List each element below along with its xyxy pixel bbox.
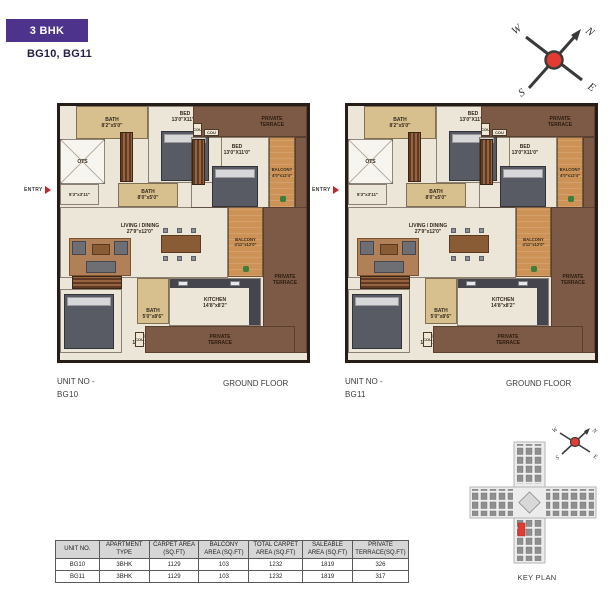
compass-s-label: S: [516, 86, 527, 99]
cdu-box: COU: [423, 332, 432, 347]
svg-text:N: N: [590, 427, 598, 435]
table-cell: 1819: [303, 559, 353, 571]
table-cell: 103: [199, 571, 249, 583]
svg-text:S: S: [555, 455, 561, 462]
balcony-1: BALCONY4'0"x12'4": [269, 137, 295, 208]
unit-numbers-subtitle: BG10, BG11: [27, 48, 92, 60]
room-bath-3: BATH5'0"x8'6": [137, 278, 169, 324]
floor-caption-bg10: GROUND FLOOR: [223, 378, 288, 391]
room-bath-1: BATH8'2"x5'0": [364, 106, 436, 139]
table-cell: 3BHK: [99, 571, 149, 583]
plant-icon: [531, 266, 537, 272]
keyplan-highlighted-unit: [518, 523, 525, 536]
plant-icon: [280, 196, 286, 202]
unit-number: BG11: [345, 389, 383, 402]
wardrobe-icon: [360, 276, 410, 289]
cdu-box: COU: [135, 332, 144, 347]
table-cell: 1129: [149, 571, 199, 583]
svg-text:W: W: [552, 426, 560, 434]
floor-plan: ENTRY BATH8'2"x5'0" BED13'0"X11'1" PRIVA…: [345, 103, 598, 363]
floor-caption-bg11: GROUND FLOOR: [506, 378, 571, 391]
table-cell: 326: [352, 559, 408, 571]
entry-foyer: 5'3"x3'11": [60, 184, 99, 205]
unit-caption-bg10: UNIT NO - BG10: [57, 376, 95, 402]
table-header-cell: CARPET AREA (SQ.FT): [149, 541, 199, 559]
table-cell: 103: [199, 559, 249, 571]
compass-n-label: N: [582, 24, 596, 39]
cdu-box: COU: [204, 129, 219, 136]
room-living-dining: LIVING / DINING27'9"x12'0": [60, 207, 228, 278]
plant-icon: [568, 196, 574, 202]
room-bed-3: [348, 289, 410, 353]
area-table: UNIT NO.APARTMENT TYPECARPET AREA (SQ.FT…: [55, 540, 409, 583]
floor-plan: ENTRY BATH8'2"x5'0" BED13'0"X11'1" PRIVA…: [57, 103, 310, 363]
table-cell: BG11: [56, 571, 100, 583]
entry-arrow-icon: [333, 186, 339, 194]
compass-rose: N W S E: [505, 18, 610, 103]
room-bath-1: BATH8'2"x5'0": [76, 106, 148, 139]
table-header-cell: TOTAL CARPET AREA (SQ.FT): [249, 541, 303, 559]
private-terrace-bottom: PRIVATE TERRACE: [433, 326, 583, 353]
room-kitchen: KITCHEN14'8"x8'2": [457, 278, 549, 326]
wardrobe-icon: [120, 132, 133, 182]
keyplan-building: [470, 442, 596, 563]
bed-furniture-icon: [352, 294, 402, 349]
ots-shaft: OTS: [348, 139, 393, 184]
bed-furniture-icon: [500, 166, 546, 207]
table-cell: 317: [352, 571, 408, 583]
wardrobe-icon: [72, 276, 122, 289]
private-terrace-edge: [295, 137, 307, 208]
balcony-2: BALCONY4'11"x12'0": [228, 207, 263, 277]
table-cell: 1129: [149, 559, 199, 571]
balcony-2: BALCONY4'11"x12'0": [516, 207, 551, 277]
table-row: BG113BHK112910312321819317: [56, 571, 409, 583]
table-cell: 1232: [249, 559, 303, 571]
cdu-box: COU: [492, 129, 507, 136]
compass-e-label: E: [584, 80, 597, 94]
sofa-set-icon: [357, 238, 419, 276]
entry-label: ENTRY: [312, 187, 331, 193]
bed-furniture-icon: [212, 166, 258, 207]
room-living-dining: LIVING / DINING27'9"x12'0": [348, 207, 516, 278]
svg-text:E: E: [591, 453, 599, 461]
table-row: BG103BHK112910312321819326: [56, 559, 409, 571]
unit-number: BG10: [57, 389, 95, 402]
private-terrace-bottom: PRIVATE TERRACE: [145, 326, 295, 353]
entry-marker: ENTRY: [24, 186, 51, 194]
table-header-cell: APARTMENT TYPE: [99, 541, 149, 559]
kitchen-counter-icon: [170, 279, 260, 288]
sofa-set-icon: [69, 238, 131, 276]
kitchen-counter-icon: [458, 279, 548, 288]
dining-table-icon: [445, 228, 493, 262]
wardrobe-icon: [480, 139, 493, 185]
floorplan-brochure-page: { "page": { "badge": "3 BHK", "subtitle"…: [0, 0, 615, 613]
room-bath-2: BATH8'0"x5'0": [118, 183, 178, 207]
entry-arrow-icon: [45, 186, 51, 194]
room-bath-2: BATH8'0"x5'0": [406, 183, 466, 207]
table-header-cell: SALEABLE AREA (SQ.FT): [303, 541, 353, 559]
entry-foyer: 5'3"x3'11": [348, 184, 387, 205]
cdu-box: COU: [481, 123, 490, 136]
table-header-cell: UNIT NO.: [56, 541, 100, 559]
table-cell: BG10: [56, 559, 100, 571]
dining-table-icon: [157, 228, 205, 262]
unit-label: UNIT NO -: [345, 376, 383, 389]
table-cell: 1819: [303, 571, 353, 583]
kitchen-counter-icon: [537, 288, 548, 325]
bhk-type-badge: 3 BHK: [6, 19, 88, 42]
key-plan-caption: KEY PLAN: [462, 573, 612, 582]
ots-shaft: OTS: [60, 139, 105, 184]
floor-plan-bg11: ENTRY BATH8'2"x5'0" BED13'0"X11'1" PRIVA…: [345, 103, 598, 363]
bed-furniture-icon: [64, 294, 114, 349]
wardrobe-icon: [408, 132, 421, 182]
entry-marker: ENTRY: [312, 186, 339, 194]
kitchen-counter-icon: [249, 288, 260, 325]
key-plan: N W S E KEY PLAN: [462, 420, 612, 585]
balcony-1: BALCONY4'0"x12'4": [557, 137, 583, 208]
entry-label: ENTRY: [24, 187, 43, 193]
table-cell: 1232: [249, 571, 303, 583]
wardrobe-icon: [192, 139, 205, 185]
unit-label: UNIT NO -: [57, 376, 95, 389]
private-terrace-edge: [583, 137, 595, 208]
plant-icon: [243, 266, 249, 272]
room-kitchen: KITCHEN14'8"x8'2": [169, 278, 261, 326]
floor-plan-bg10: ENTRY BATH8'2"x5'0" BED13'0"X11'1" PRIVA…: [57, 103, 310, 363]
keyplan-compass-icon: N W S E: [552, 426, 599, 462]
table-header-cell: PRIVATE TERRACE(SQ.FT): [352, 541, 408, 559]
room-bed-3: [60, 289, 122, 353]
room-bath-3: BATH5'0"x8'6": [425, 278, 457, 324]
cdu-box: COU: [193, 123, 202, 136]
table-cell: 3BHK: [99, 559, 149, 571]
table-header-cell: BALCONY AREA (SQ.FT): [199, 541, 249, 559]
compass-w-label: W: [509, 22, 524, 38]
unit-caption-bg11: UNIT NO - BG11: [345, 376, 383, 402]
